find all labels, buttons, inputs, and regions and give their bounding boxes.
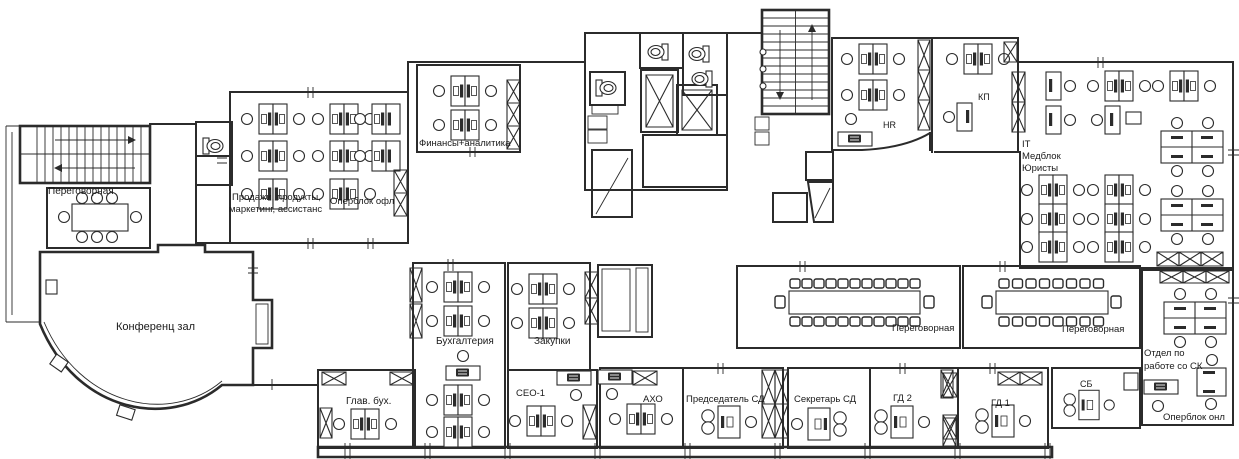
room-finance: Финансы+аналитика — [419, 76, 520, 149]
room-meeting-mid-right: Переговорная — [982, 279, 1124, 335]
floor-plan: Переговорная Конференц зал Продажи, прод… — [0, 0, 1239, 459]
room-sk-dept: Отдел по работе со СК Оперблок онл — [1144, 271, 1229, 423]
room-label-procurement: Закупки — [534, 336, 570, 347]
room-label-sk-2: работе со СК — [1144, 361, 1203, 372]
room-procurement: Закупки — [512, 272, 599, 347]
room-accounting: Бухгалтерия — [410, 268, 494, 447]
room-sales: Продажи, продукты, маркетинг, ассистанс … — [229, 104, 407, 216]
stairs-nw-icon — [20, 126, 150, 183]
room-chief-accountant: Глав. бух. — [320, 372, 414, 439]
room-label-aho: АХО — [643, 394, 663, 405]
floor-plan-page: Переговорная Конференц зал Продажи, прод… — [0, 0, 1239, 459]
room-meeting-nw: Переговорная — [48, 186, 142, 243]
room-label-gd2: ГД 2 — [893, 393, 912, 404]
room-label-sales-2: маркетинг, ассистанс — [229, 204, 322, 215]
room-label-kp: КП — [978, 92, 990, 102]
room-aho: АХО — [598, 370, 673, 434]
room-it: IT Медблок Юристы — [1022, 71, 1224, 266]
room-label-secretary: Секретарь СД — [794, 394, 857, 405]
room-ceo: СЕО-1 — [510, 371, 597, 439]
room-label-it-1: IT — [1022, 139, 1031, 150]
room-label-sales-1: Продажи, продукты, — [232, 192, 321, 203]
room-label-sk-1: Отдел по — [1144, 348, 1185, 359]
room-label-chairman: Председатель СД — [686, 394, 765, 405]
room-label-meeting-nw: Переговорная — [48, 186, 114, 197]
room-label-gd1: ГД 1 — [991, 398, 1010, 409]
room-label-it-3: Юристы — [1022, 163, 1058, 174]
room-label-chief-accountant: Глав. бух. — [346, 395, 391, 407]
room-secretary: Секретарь СД — [792, 394, 857, 440]
room-label-hr: HR — [883, 120, 896, 130]
room-label-operblock-onl: Оперблок онл — [1163, 412, 1225, 423]
stairs-ne-icon — [760, 10, 829, 114]
room-sb: СБ — [1064, 373, 1138, 420]
room-label-it-2: Медблок — [1022, 151, 1062, 162]
room-gd2: ГД 2 — [875, 373, 957, 439]
room-conference-hall: Конференц зал — [46, 280, 195, 420]
room-label-meeting-2: Переговорная — [1062, 324, 1124, 335]
room-chairman: Председатель СД — [686, 370, 788, 438]
room-label-sb: СБ — [1080, 379, 1092, 389]
room-hr: HR — [838, 40, 930, 146]
room-gd1: ГД 1 — [941, 370, 1042, 446]
room-label-conference-hall: Конференц зал — [116, 321, 195, 333]
room-kp: КП — [944, 42, 1026, 132]
room-meeting-mid-left: Переговорная — [775, 279, 954, 334]
room-label-operblock-ofl: Оперблок офл — [330, 196, 394, 207]
room-label-meeting-1: Переговорная — [892, 323, 954, 334]
room-label-accounting: Бухгалтерия — [436, 336, 494, 347]
room-label-finance: Финансы+аналитика — [419, 138, 511, 149]
room-label-ceo: СЕО-1 — [516, 388, 545, 399]
